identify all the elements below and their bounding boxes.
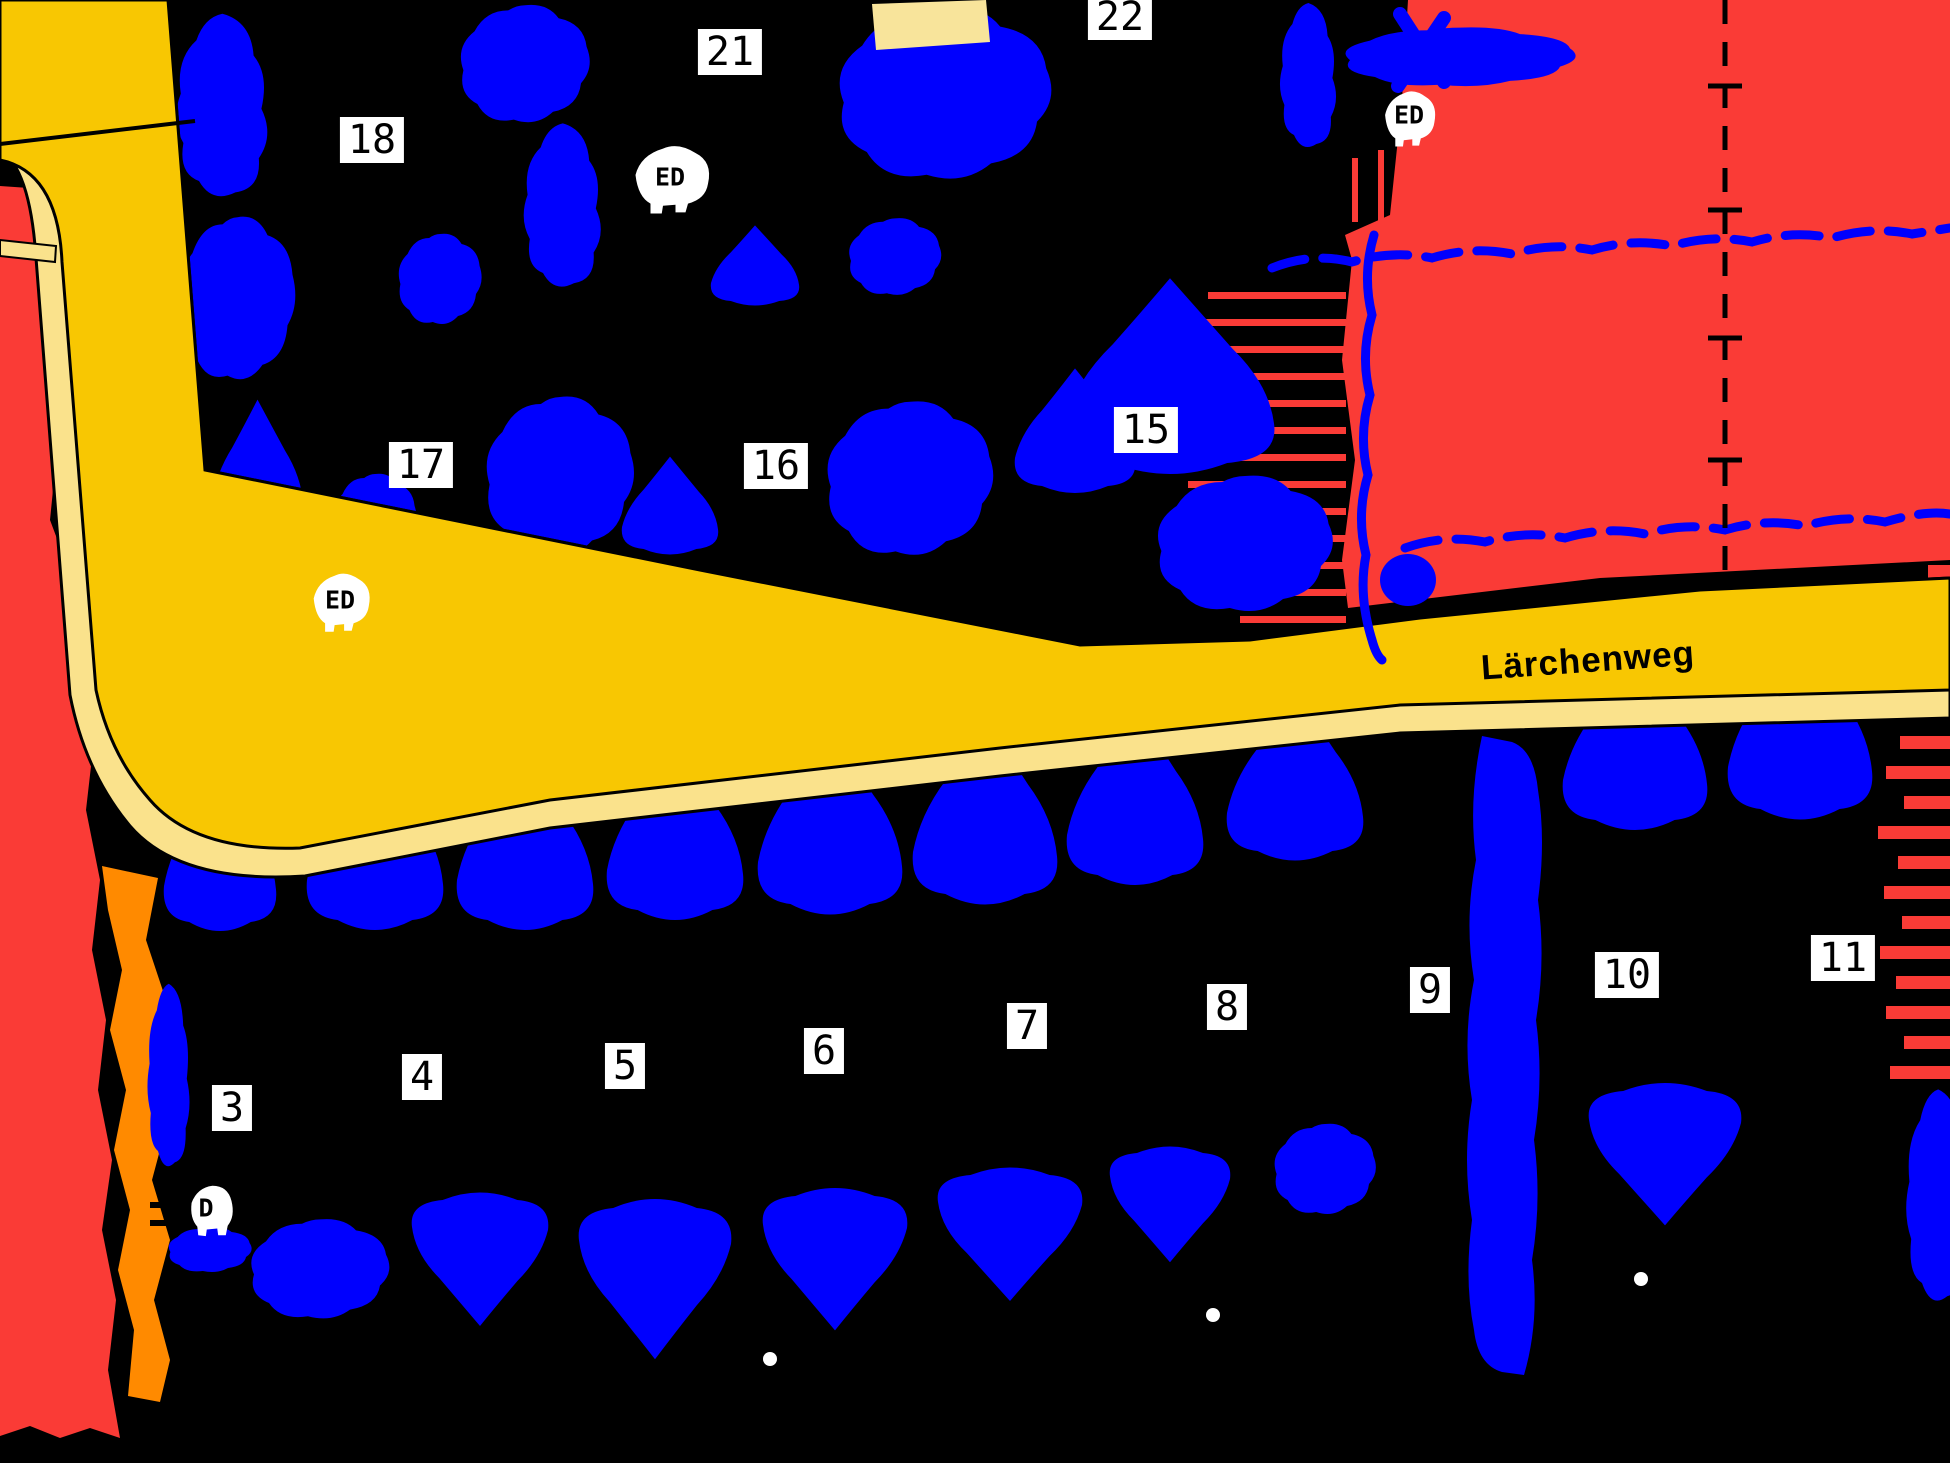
vegetation-band-vertical: [1467, 736, 1542, 1375]
map-canvas: [0, 0, 1950, 1463]
blue-spot-in-red: [1380, 554, 1436, 606]
white-dot: [1634, 1272, 1648, 1286]
white-dot: [763, 1352, 777, 1366]
map-svg: [0, 0, 1950, 1463]
building-footprint: [872, 0, 990, 50]
white-dot: [1206, 1308, 1220, 1322]
red-area-top-right-block: [1342, 0, 1950, 608]
zoning-map-page: { "map": { "type": "development-plan-map…: [0, 0, 1950, 1463]
